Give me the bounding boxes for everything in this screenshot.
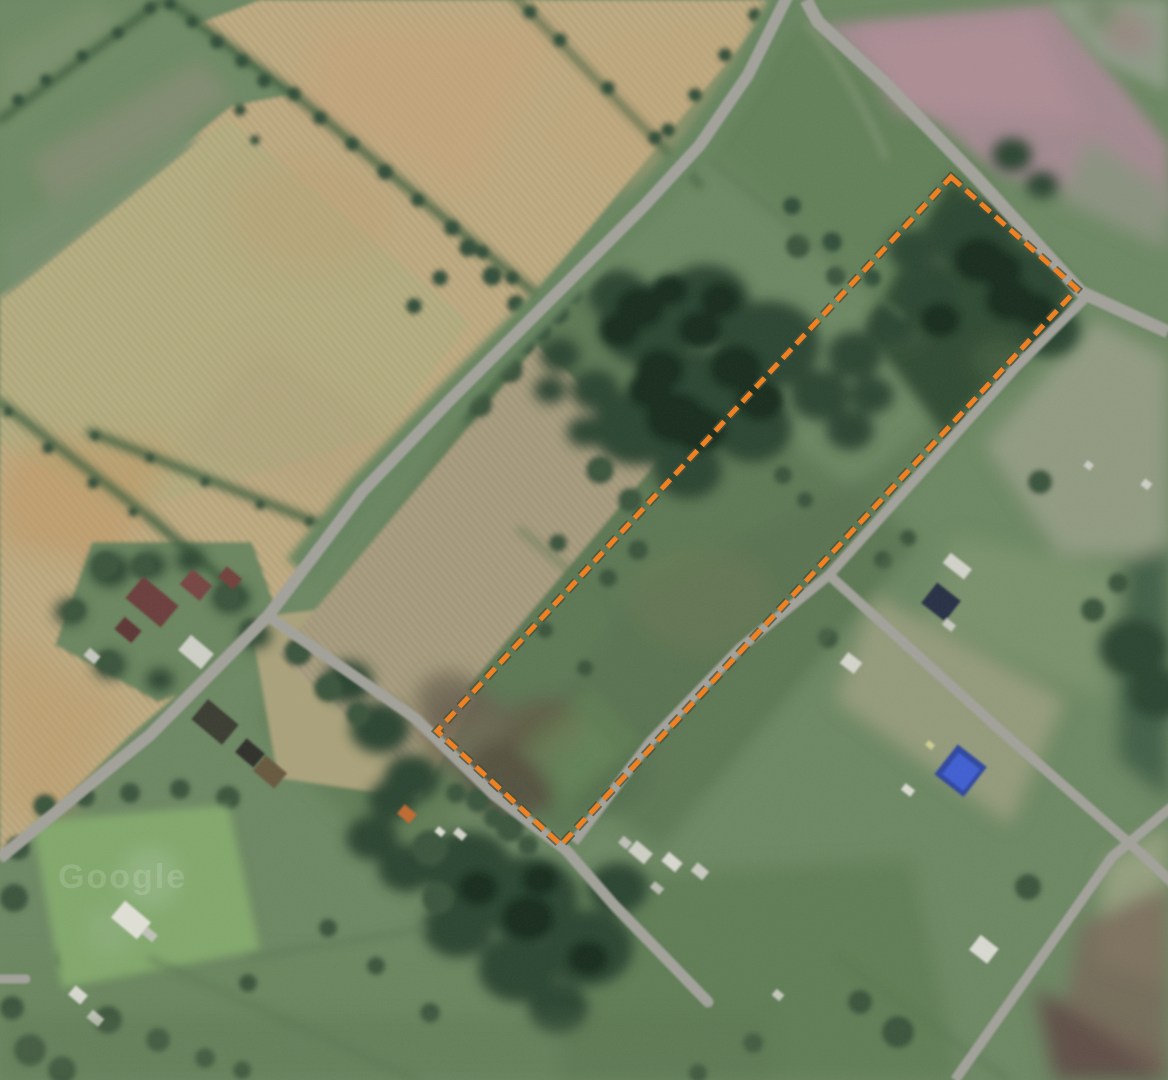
- svg-text:Google: Google: [58, 858, 187, 896]
